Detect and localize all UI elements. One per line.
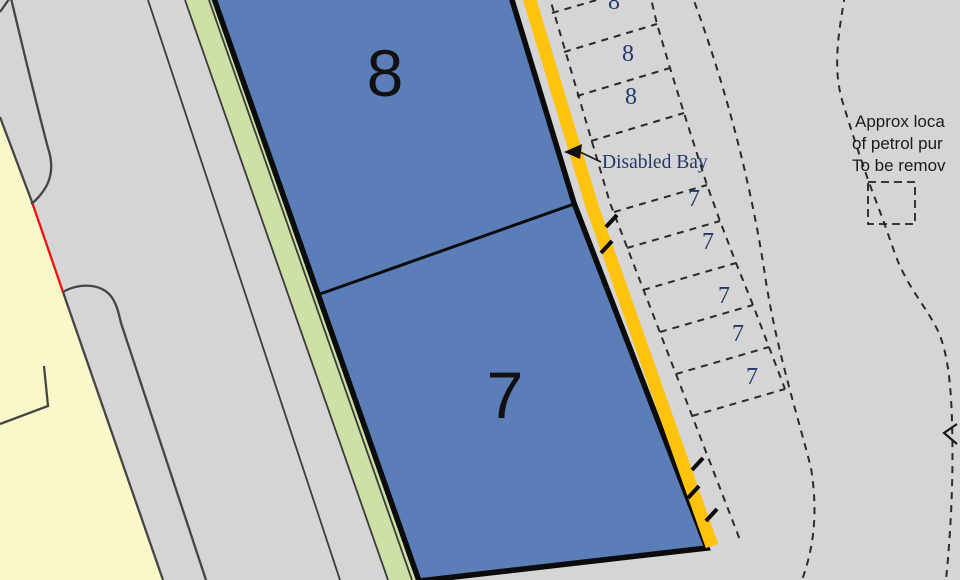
site-plan-canvas: 8 7 8 8 8 Disabled Bay 7 7 7 7 7 Approx … [0,0,960,580]
bay-number-7: 7 [746,364,758,390]
bay-number-7: 7 [732,321,744,347]
bay-number-8: 8 [608,0,620,15]
petrol-note-line1: Approx loca [855,112,945,131]
bay-number-8: 8 [622,41,634,67]
disabled-bay-label: Disabled Bay [602,152,708,173]
bay-number-8: 8 [625,84,637,110]
site-plan-drawing: 8 7 8 8 8 Disabled Bay 7 7 7 7 7 Approx … [0,0,960,580]
petrol-pump-note: Approx loca of petrol pur To be remov [852,112,946,175]
bay-number-7: 7 [688,186,700,212]
petrol-note-line3: To be remov [852,156,946,175]
building-7-label: 7 [487,358,524,432]
bay-number-7: 7 [702,229,714,255]
bay-number-7: 7 [718,283,730,309]
building-8-label: 8 [367,36,404,110]
petrol-note-line2: of petrol pur [852,134,943,153]
